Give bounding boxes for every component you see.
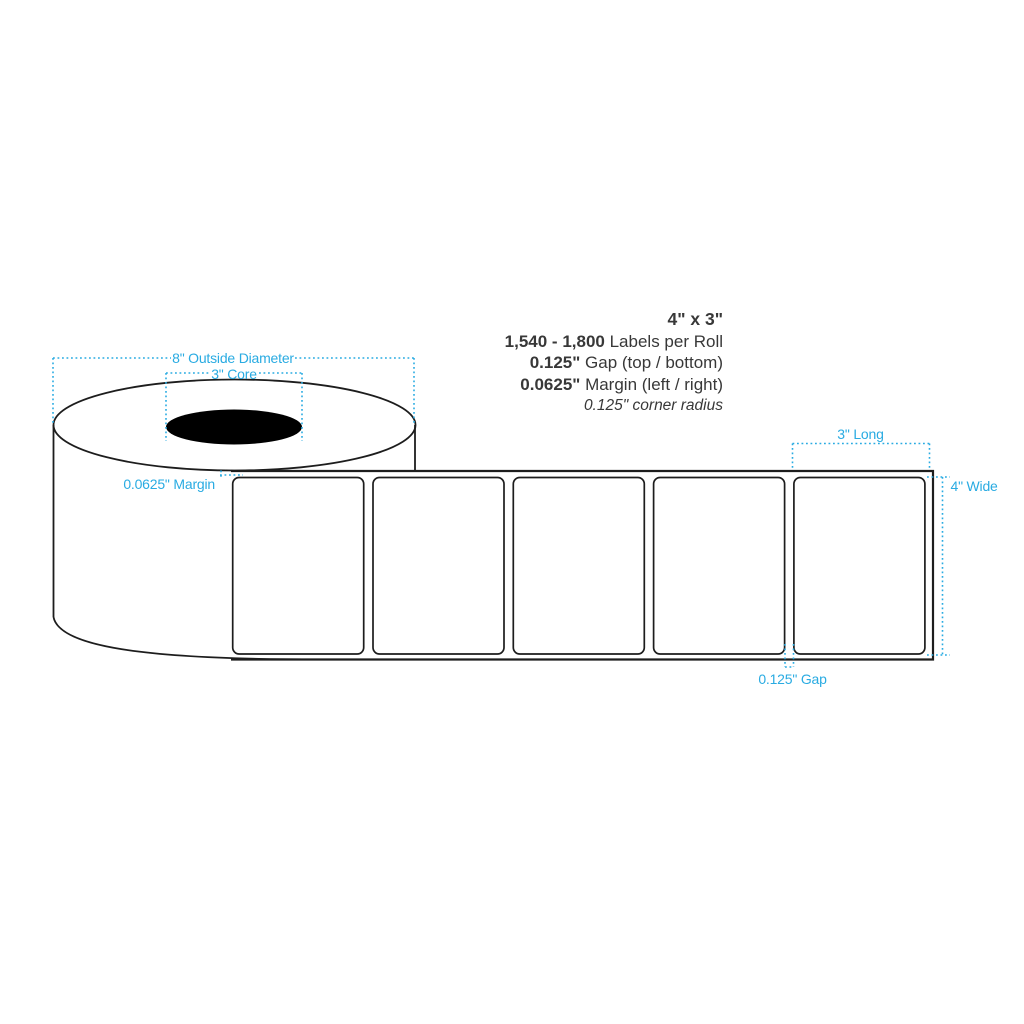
spec-text-block: 4" x 3" 1,540 - 1,800 Labels per Roll 0.…: [505, 309, 723, 417]
margin-dim-label: 0.0625" Margin: [123, 476, 215, 492]
long-dim-label: 3" Long: [837, 426, 883, 442]
label-rect: [654, 478, 785, 655]
spec-size: 4" x 3": [505, 309, 723, 331]
core-dim-label: 3" Core: [211, 366, 257, 382]
gap-dim-label: 0.125" Gap: [758, 671, 826, 687]
od-dim-label: 8" Outside Diameter: [172, 350, 294, 366]
label-rect: [513, 478, 644, 655]
labels-group: [233, 478, 925, 655]
spec-count: 1,540 - 1,800 Labels per Roll: [505, 331, 723, 353]
spec-margin: 0.0625" Margin (left / right): [505, 374, 723, 396]
spec-gap: 0.125" Gap (top / bottom): [505, 352, 723, 374]
label-roll-diagram: 4" x 3" 1,540 - 1,800 Labels per Roll 0.…: [0, 0, 1024, 1024]
wide-dim-label: 4" Wide: [951, 478, 998, 494]
roll-core-hole: [166, 410, 302, 445]
diagram-canvas: [0, 0, 1024, 1024]
spec-corner-radius: 0.125" corner radius: [505, 395, 723, 417]
label-rect: [794, 478, 925, 655]
label-rect: [373, 478, 504, 655]
label-rect: [233, 478, 364, 655]
